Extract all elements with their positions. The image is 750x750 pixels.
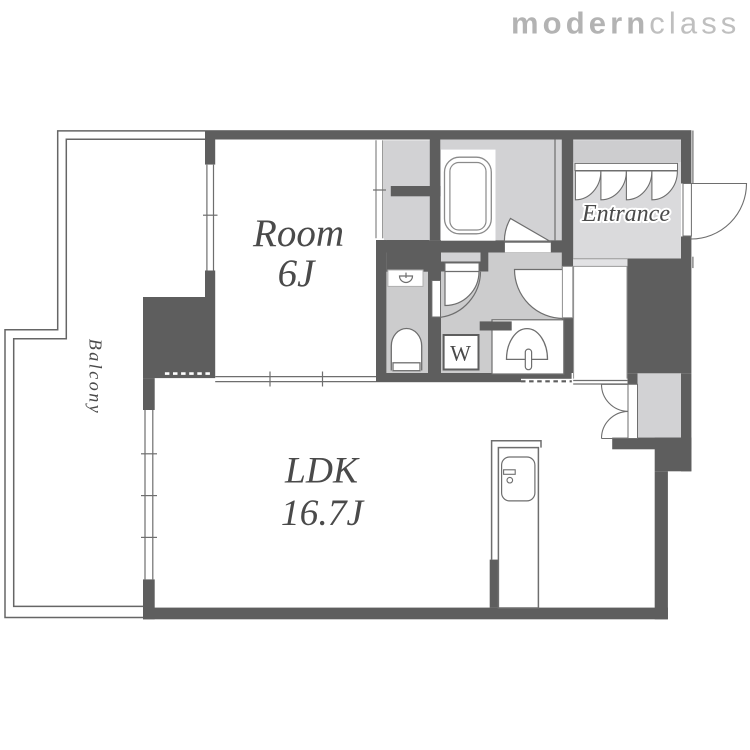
svg-text:modernclass: modernclass bbox=[511, 6, 740, 41]
svg-text:W: W bbox=[450, 341, 471, 366]
svg-text:Entrance: Entrance bbox=[581, 201, 670, 227]
svg-text:Balcony: Balcony bbox=[86, 339, 106, 415]
svg-text:LDK: LDK bbox=[284, 451, 360, 492]
svg-text:16.7J: 16.7J bbox=[281, 493, 366, 534]
svg-text:Room: Room bbox=[252, 212, 344, 255]
svg-text:6J: 6J bbox=[278, 252, 317, 295]
